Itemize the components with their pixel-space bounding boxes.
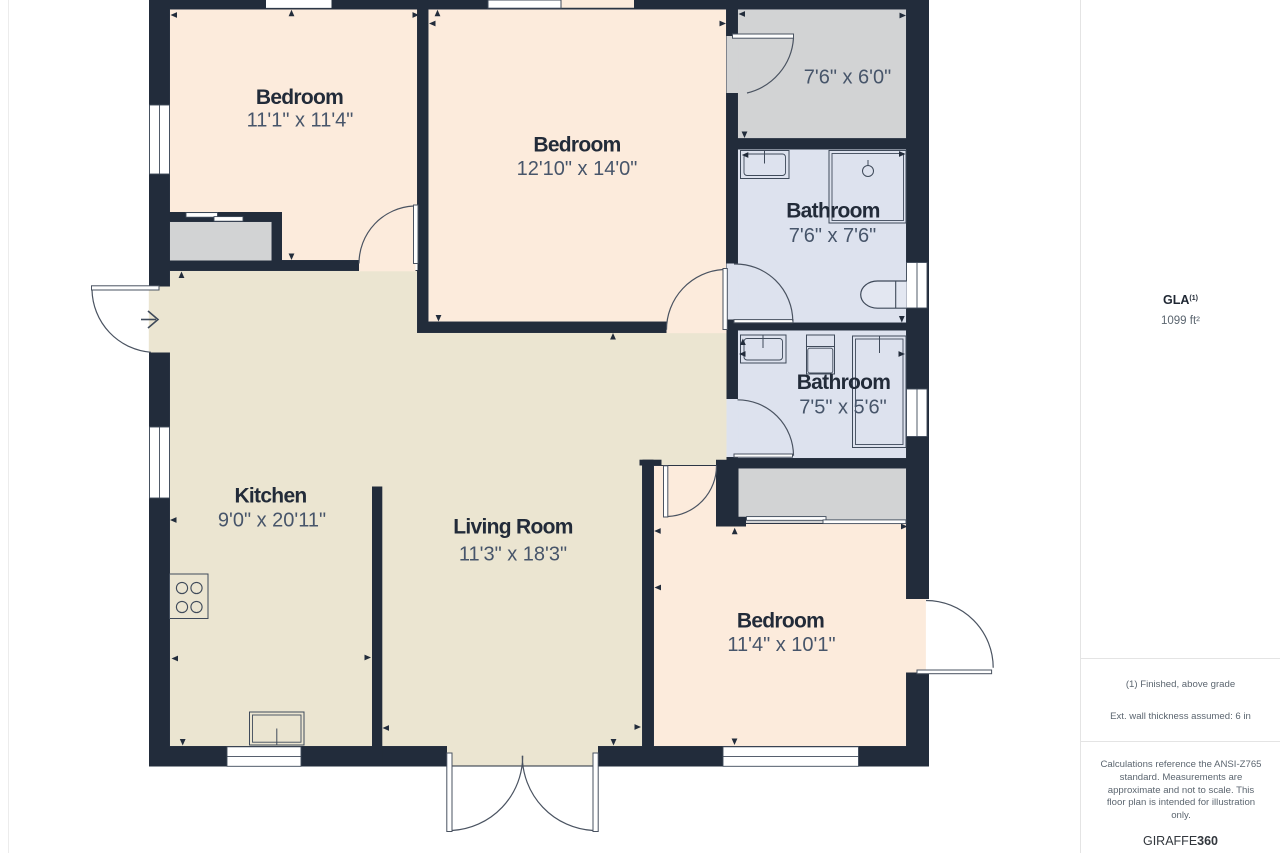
- svg-text:Bedroom: Bedroom: [533, 134, 620, 157]
- svg-text:Kitchen: Kitchen: [234, 485, 306, 508]
- svg-text:Bedroom: Bedroom: [737, 610, 824, 633]
- svg-text:11'4" x 10'1": 11'4" x 10'1": [727, 634, 835, 656]
- svg-text:12'10" x 14'0": 12'10" x 14'0": [517, 158, 638, 180]
- svg-text:7'5" x 5'6": 7'5" x 5'6": [799, 397, 886, 419]
- svg-text:Bedroom: Bedroom: [256, 86, 343, 109]
- svg-text:11'3" x 18'3": 11'3" x 18'3": [459, 544, 567, 566]
- svg-text:11'1" x 11'4": 11'1" x 11'4": [247, 110, 354, 132]
- svg-text:Bathroom: Bathroom: [797, 371, 891, 394]
- svg-text:Living Room: Living Room: [453, 516, 572, 539]
- svg-text:7'6" x 7'6": 7'6" x 7'6": [789, 225, 876, 247]
- svg-text:7'6" x 6'0": 7'6" x 6'0": [804, 67, 891, 89]
- svg-text:9'0" x 20'11": 9'0" x 20'11": [218, 510, 326, 532]
- svg-text:Bathroom: Bathroom: [786, 200, 880, 223]
